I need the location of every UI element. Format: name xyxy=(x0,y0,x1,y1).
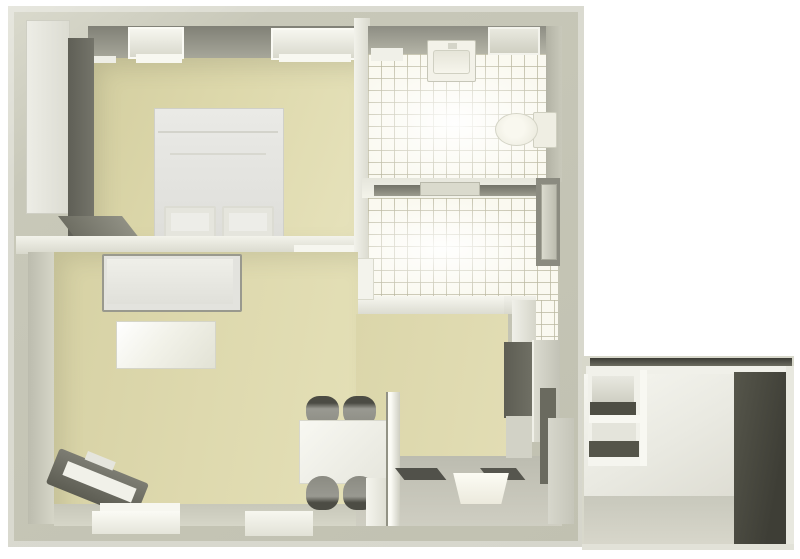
annex-dark-wall xyxy=(734,372,788,546)
bed-pillow-2 xyxy=(222,206,274,238)
counter-shadow-1 xyxy=(395,468,446,480)
annex-bottom-edge xyxy=(582,544,794,550)
living-window-1 xyxy=(92,511,180,534)
bathroom-door-leaf xyxy=(420,182,480,196)
washbasin-faucet xyxy=(448,43,457,49)
bed-seam-2 xyxy=(170,153,266,155)
hallway-l-wall xyxy=(356,296,516,314)
bed-pillow-1 xyxy=(164,206,216,238)
bathroom-window xyxy=(488,27,540,55)
annex-shelf-board-dark-2 xyxy=(589,441,639,457)
wardrobe-side-face xyxy=(68,38,94,236)
kitchen-cabinet-dark-a xyxy=(504,342,532,418)
bedroom-sill-small xyxy=(92,56,116,63)
annex-shelf-board-dark-1 xyxy=(590,402,636,415)
kitchen-door-leaf xyxy=(366,478,386,526)
dining-table xyxy=(299,420,387,484)
annex-top-wall-dark xyxy=(590,358,792,366)
kitchen-wall-patch xyxy=(506,416,532,458)
washbasin-bowl xyxy=(433,50,470,74)
coffee-table xyxy=(116,321,216,369)
annex-shelf-board-white xyxy=(589,415,641,423)
annex-shelf-bottom xyxy=(588,457,644,466)
annex-floor xyxy=(584,496,736,546)
living-window-2 xyxy=(245,511,313,536)
annex-shelf-side-panel xyxy=(640,370,647,466)
wardrobe-front xyxy=(26,20,70,214)
bathroom-right-wall-face xyxy=(546,26,562,182)
hallway-floor-sheen xyxy=(368,198,558,300)
bathroom-shelf xyxy=(371,48,403,61)
kitchen-partition-wall xyxy=(386,392,400,526)
sofa-seat xyxy=(107,259,233,304)
floor-plan-canvas xyxy=(0,0,800,559)
toilet-bowl xyxy=(495,113,538,146)
annex-shelf-opening-mid xyxy=(592,423,636,441)
dining-chair-3 xyxy=(306,476,339,510)
bed-seam-1 xyxy=(158,131,278,133)
annex-shelf-opening-top xyxy=(592,376,634,402)
bedroom-window-1-sill xyxy=(136,54,182,63)
annex-right-edge xyxy=(786,366,794,548)
living-window-sill xyxy=(100,503,180,511)
bedroom-window-2-sill xyxy=(279,54,351,62)
kitchen-cabinet-light-d xyxy=(548,418,574,524)
entrance-door-leaf xyxy=(541,184,557,260)
kitchen-sink xyxy=(452,473,510,504)
